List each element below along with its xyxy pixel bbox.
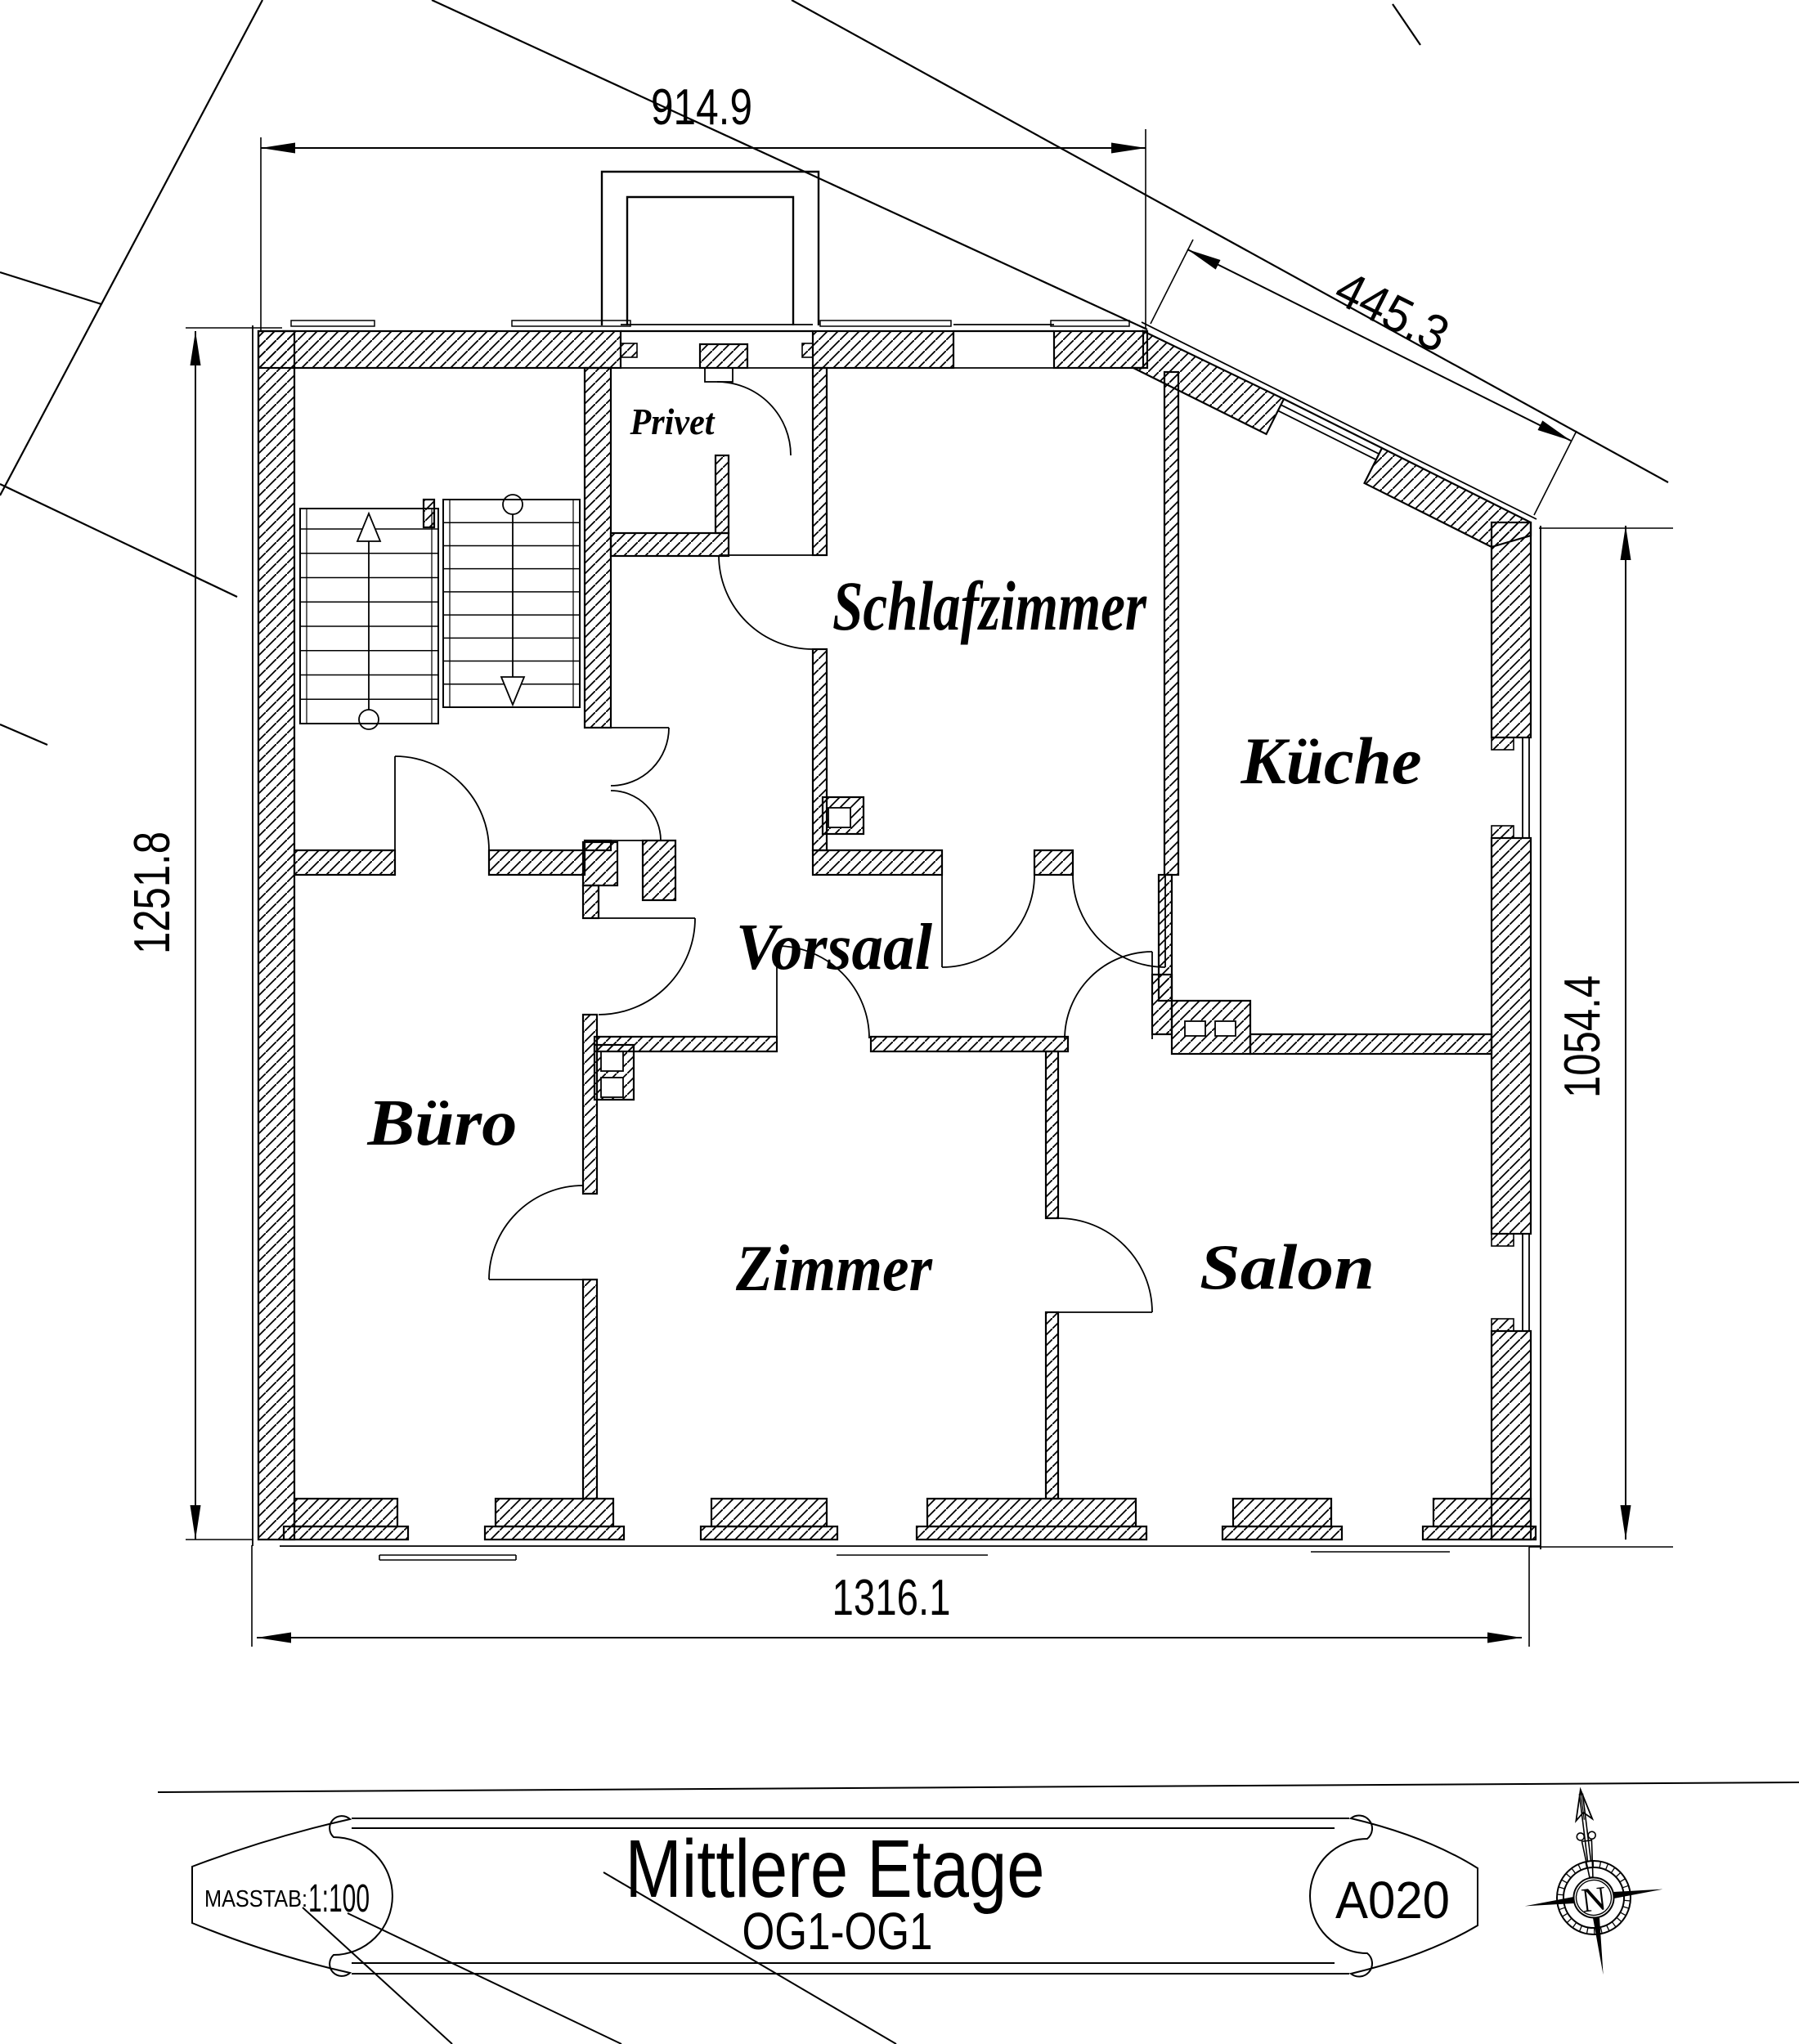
svg-text:N: N xyxy=(1580,1880,1609,1920)
svg-text:1316.1: 1316.1 xyxy=(832,1570,951,1626)
svg-text:Zimmer: Zimmer xyxy=(735,1233,933,1305)
svg-text:Büro: Büro xyxy=(366,1087,517,1159)
svg-text:Vorsaal: Vorsaal xyxy=(736,912,933,984)
svg-text:OG1-OG1: OG1-OG1 xyxy=(742,1902,933,1961)
svg-text:1:100: 1:100 xyxy=(308,1877,370,1921)
svg-text:Küche: Küche xyxy=(1240,724,1421,798)
svg-text:Schlafzimmer: Schlafzimmer xyxy=(832,567,1147,645)
svg-text:1054.4: 1054.4 xyxy=(1554,975,1611,1098)
svg-text:1251.8: 1251.8 xyxy=(124,831,181,954)
svg-text:Privet: Privet xyxy=(630,401,716,442)
svg-text:914.9: 914.9 xyxy=(651,79,752,136)
svg-text:A020: A020 xyxy=(1335,1871,1450,1930)
svg-text:MASSTAB:: MASSTAB: xyxy=(204,1886,307,1912)
svg-text:Salon: Salon xyxy=(1200,1231,1375,1302)
